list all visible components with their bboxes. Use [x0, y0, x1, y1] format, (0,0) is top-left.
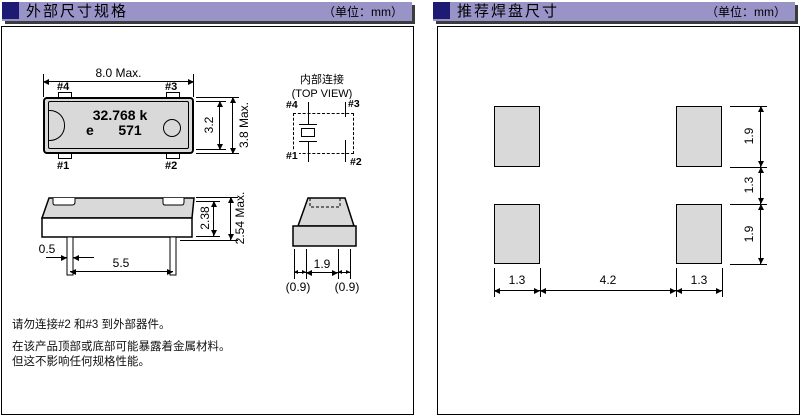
dim-line-outer-height — [232, 97, 233, 154]
pin4-label: #4 — [57, 82, 69, 93]
dim-label-lead-width-right: (0.9) — [327, 281, 367, 294]
dim-label-lead-width: 0.5 — [27, 243, 67, 256]
dim-label-pad-height-bottom: 1.9 — [742, 194, 756, 274]
pad-bottom-right — [676, 204, 722, 264]
dim-label-outer-height: 3.8 Max. — [237, 85, 251, 165]
dim-label-lead-spacing: 5.5 — [91, 257, 151, 270]
datasheet-page: 外部尺寸规格 （单位：mm） 推荐焊盘尺寸 （单位：mm） 8.0 Max. 3… — [0, 0, 801, 416]
pin2-label: #2 — [165, 161, 177, 172]
side-view-front-face — [42, 218, 192, 237]
dim-line-pad-gap — [540, 290, 676, 291]
marking-circle — [163, 119, 181, 137]
dim-label-pad-gap: 4.2 — [540, 274, 676, 287]
dim-label-pad-width-left: 1.3 — [494, 274, 540, 287]
dim-line-pad-height-top — [760, 106, 761, 167]
dim-line-pad-width-left — [494, 290, 540, 291]
recommended-pads-header: 推荐焊盘尺寸 （单位：mm） — [433, 2, 795, 21]
section-title: 推荐焊盘尺寸 — [457, 2, 559, 21]
dim-line-total-height — [230, 197, 231, 240]
marking-code: 571 — [110, 123, 150, 138]
ic-pin2-label: #2 — [349, 157, 363, 168]
pad-top-left — [494, 106, 540, 167]
dim-label-lead-width-left: (0.9) — [278, 281, 318, 294]
crystal-plate-top — [299, 124, 317, 125]
note-line: 但这不影响任何规格性能。 — [12, 355, 150, 369]
extension-line — [350, 249, 351, 279]
dim-line-pad-height-bottom — [760, 204, 761, 264]
ic-pin1-label: #1 — [285, 151, 299, 162]
end-view-base — [293, 226, 356, 246]
pin4-wire — [308, 102, 309, 124]
pin1-tab — [58, 153, 72, 159]
end-view-drawing — [290, 196, 360, 248]
external-dimensions-header: 外部尺寸规格 （单位：mm） — [2, 2, 412, 21]
dim-label-body-height: 2.38 — [198, 178, 212, 258]
side-view-left-notch — [53, 198, 75, 205]
dim-line-lead-left — [294, 272, 306, 273]
unit-label: （单位：mm） — [706, 3, 795, 20]
dim-line-inner-height — [219, 101, 220, 150]
dim-line-lead-width-left — [46, 257, 67, 258]
end-view-body — [298, 198, 354, 226]
dim-line-lead-gap — [306, 272, 338, 273]
dim-line-body-height — [213, 201, 214, 236]
marking-e: e — [86, 123, 94, 138]
pin2-stub — [345, 140, 346, 162]
pin1-label: #1 — [57, 161, 69, 172]
ic-pin3-label: #3 — [347, 99, 361, 110]
header-square-icon — [433, 2, 450, 19]
pin3-label: #3 — [165, 82, 177, 93]
dim-line-pad-vgap — [760, 167, 761, 204]
dim-line-lead-right — [338, 272, 350, 273]
pin3-stub — [345, 102, 346, 117]
dim-label-width: 8.0 Max. — [43, 67, 194, 80]
pad-bottom-left — [494, 204, 540, 264]
unit-label: （单位：mm） — [323, 3, 412, 20]
extension-line — [338, 249, 339, 279]
dim-label-lead-gap: 1.9 — [306, 258, 338, 271]
extension-line — [294, 249, 295, 279]
dim-line-lead-spacing — [70, 271, 173, 272]
header-square-icon — [2, 2, 19, 19]
marking-frequency: 32.768 k — [75, 108, 165, 123]
extension-line — [722, 268, 723, 297]
note-line: 请勿连接#2 和#3 到外部器件。 — [12, 318, 170, 332]
side-view-right-notch — [163, 198, 184, 205]
pin2-tab — [166, 153, 180, 159]
pad-top-right — [676, 106, 722, 167]
dim-line-pad-width-right — [676, 290, 722, 291]
internal-connection-title: 内部连接 — [287, 74, 357, 87]
note-line: 在该产品顶部或底部可能暴露着金属材料。 — [12, 340, 231, 354]
dim-label-pad-width-right: 1.3 — [676, 274, 722, 287]
pin1-wire — [308, 142, 309, 162]
dim-label-total-height: 2.54 Max. — [233, 178, 247, 258]
section-title: 外部尺寸规格 — [26, 2, 128, 21]
ic-pin4-label: #4 — [285, 100, 299, 111]
crystal-symbol — [301, 128, 315, 137]
